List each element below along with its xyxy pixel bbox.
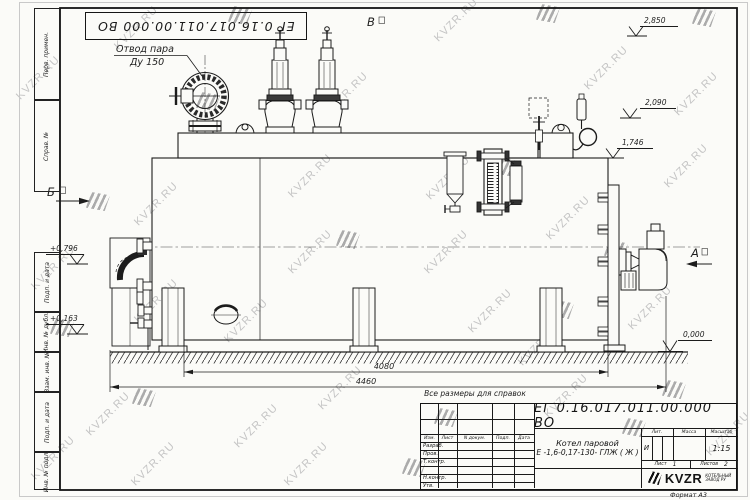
dimension-lines: 4080 4460: [110, 296, 666, 392]
callout-steam-outlet: Отвод пара Ду 150: [114, 44, 202, 76]
margin-field-sprav-no: Справ. №: [34, 100, 60, 192]
ground-hatching: [110, 352, 688, 364]
reference-note: Все размеры для справок: [405, 389, 545, 398]
dimension-4460: 4460: [356, 377, 376, 386]
margin-field-perv-primen: Перв. примен.: [34, 8, 60, 100]
tb-product-line2: Е -1,6-0,17-130- ГЛЖ ( Ж ): [536, 448, 638, 457]
dimension-4080: 4080: [374, 362, 394, 371]
view-label-top: В: [367, 15, 375, 29]
elevation-0000: 0,000: [683, 330, 705, 339]
tb-scale-label: Масштаб: [705, 428, 738, 436]
kvzr-logo-text: KVZR: [665, 471, 702, 486]
tb-row-utv: Утв.: [421, 482, 457, 490]
elevation-1746: 1,746: [622, 138, 644, 147]
margin-field-vzam-inv: Взам. инв. №: [34, 352, 60, 392]
tb-scale-value: 1:15: [705, 436, 738, 460]
burner-assembly: [598, 185, 667, 351]
safety-valve: [259, 27, 301, 133]
format-label: Формат А3: [640, 491, 737, 499]
tb-row-tkontr: Т.контр.: [421, 458, 457, 466]
manhole: [211, 306, 241, 324]
view-label-right: А: [690, 246, 699, 260]
steam-outlet-valve: [169, 55, 229, 133]
tb-lit-value: И: [641, 436, 652, 460]
tb-mass-label: Масса: [673, 428, 705, 436]
drawing-sheet: KVZR.RUKVZR.RUKVZR.RUKVZR.RUKVZR.RUKVZR.…: [0, 0, 750, 500]
margin-field-podp-data-2: Подп. и дата: [34, 392, 60, 452]
tb-col-izm: Изм.: [421, 434, 438, 442]
dome-and-pressure-gauge: [529, 94, 597, 158]
top-stamp-doc-number: ЕГ 0.16.017.011.00.000 ВО: [85, 12, 307, 40]
support-legs: [159, 288, 565, 352]
callout-steam-text-1: Отвод пара: [116, 44, 174, 55]
safety-valve-2: [306, 27, 348, 133]
tb-col-list: Лист: [438, 434, 457, 442]
tb-lit-label: Лит.: [641, 428, 673, 436]
margin-field-inv-dubl: Инв. № дубл.: [34, 312, 60, 352]
tb-sheet-cell: Лист 1: [641, 460, 690, 468]
tb-col-podp: Подп.: [492, 434, 514, 442]
kvzr-logo-icon: [648, 471, 662, 485]
margin-field-podp-data-1: Подп. и дата: [34, 252, 60, 312]
elevation-2090: 2,090: [645, 98, 667, 107]
tb-col-data: Дата: [514, 434, 534, 442]
tb-product-name: Котел паровой Е -1,6-0,17-130- ГЛЖ ( Ж ): [534, 428, 641, 468]
tb-doc-number: ЕГ 0.16.017.011.00.000 ВО: [534, 404, 738, 428]
callout-steam-text-2: Ду 150: [129, 57, 164, 68]
tb-company-logo: KVZR КОТЕЛЬНЫЙ ЗАВОД РУ: [641, 468, 738, 488]
tb-col-ndoc: N докум.: [457, 434, 492, 442]
lifting-lug-left: [236, 124, 254, 133]
margin-field-inv-podl: Инв. № подл.: [34, 452, 60, 490]
tb-sheets-cell: Листов 2: [690, 460, 738, 468]
kvzr-logo-subtext: КОТЕЛЬНЫЙ ЗАВОД РУ: [705, 474, 731, 483]
elevation-2850: 2,850: [644, 16, 666, 25]
rear-smokebox: [110, 238, 150, 346]
tb-product-line1: Котел паровой: [556, 439, 619, 448]
tb-row-nkontr: Н.контр.: [421, 474, 457, 482]
level-gauge-assembly: [444, 149, 522, 215]
tb-row-razrab: Разраб.: [421, 442, 457, 450]
title-block: Изм. Лист N докум. Подп. Дата Разраб. Пр…: [420, 403, 737, 490]
tb-row-prov: Пров.: [421, 450, 457, 458]
